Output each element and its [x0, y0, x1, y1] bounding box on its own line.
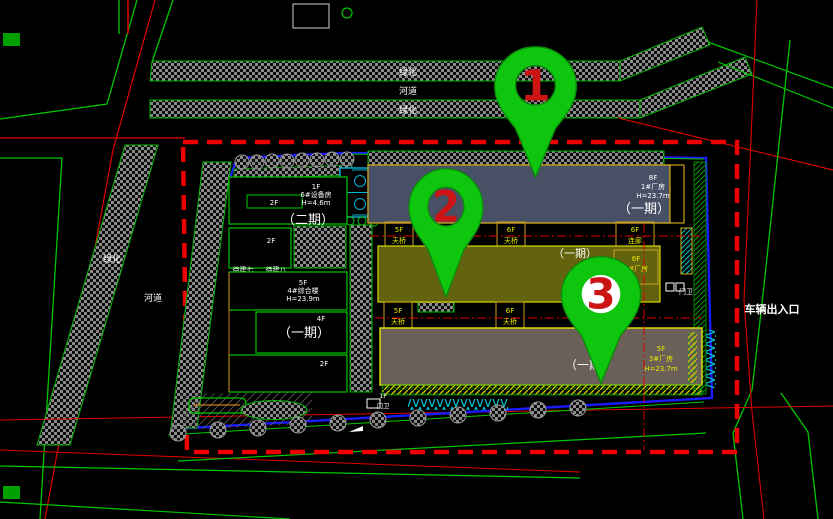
b2f-label: 2F: [267, 237, 275, 245]
left-river-label: 河道: [144, 292, 162, 304]
site-plan: 绿化 河道 绿化 河道 绿化: [0, 0, 833, 519]
b1-floors-label: 8F: [649, 174, 657, 182]
b3-name-label: 3#厂房: [649, 354, 673, 363]
cyan-zigzag-strip-right: [706, 330, 716, 388]
gatehouse-right: 门卫: [666, 283, 693, 296]
gatehouse-bottom: 1F 门卫: [367, 392, 390, 410]
green-block-top-left: [3, 33, 20, 46]
b4-height-label: H=23.9m: [286, 295, 320, 303]
pin-2-number: 2: [432, 182, 460, 232]
connector2-floors: 6F: [507, 226, 515, 234]
building-6-equipment: 1F 6#设备房 H=4.6m 2F （二期）: [229, 177, 347, 228]
gatehouse-name-label: 门卫: [377, 401, 391, 410]
building-2f-block: 2F: [229, 228, 291, 268]
site-plan-screenshot: 绿化 河道 绿化 河道 绿化: [0, 0, 833, 519]
direction-arrow: [349, 426, 363, 432]
b4-annex-floors-label: 4F: [317, 315, 325, 323]
top-river-label: 河道: [399, 85, 417, 97]
phase2-label: （二期）: [282, 213, 334, 228]
connector3-name: 连廊: [628, 236, 642, 245]
left-greening-strip: 绿化 河道: [37, 145, 162, 445]
connector1-name: 天桥: [392, 236, 406, 245]
b1-name-label: 1#厂房: [641, 182, 665, 191]
connector1-floors: 5F: [395, 226, 403, 234]
b6-floors-label: 1F: [312, 183, 320, 191]
phase1-label-left: （一期）: [278, 326, 330, 341]
b1-height-label: H=23.7m: [636, 192, 670, 200]
green-block-bottom-left: [3, 486, 20, 499]
offsite-structure: [293, 4, 329, 28]
connector5-floors: 6F: [506, 307, 514, 315]
connector3-floors: 6F: [631, 226, 639, 234]
b4-lower-floors-label: 2F: [320, 360, 328, 368]
gate2-label: 门卫: [679, 287, 693, 296]
building-3-factory: 5F 3#厂房 H=23.7m （一期）: [380, 328, 702, 395]
offsite-tree: [342, 8, 352, 18]
b6-name-label: 6#设备房: [300, 190, 331, 199]
b4-name-label: 4#综合楼: [287, 286, 318, 295]
top-greening-label-1: 绿化: [399, 66, 417, 78]
gatehouse-floors-label: 1F: [379, 392, 387, 400]
building-4-complex: 5F 4#综合楼 H=23.9m 4F （一期） 2F: [229, 272, 347, 392]
pin-1-number: 1: [520, 62, 550, 112]
pin-3-number: 3: [586, 270, 615, 319]
b3-floors-label: 5F: [657, 345, 665, 353]
b3-height-label: H=23.7m: [644, 365, 678, 373]
vehicle-entrance-label: 车辆出入口: [745, 302, 800, 316]
b6-height-label: H=4.6m: [301, 199, 330, 207]
connector4-floors: 5F: [394, 307, 402, 315]
b2-floors-label: 6F: [632, 255, 640, 263]
canal-greening-strips-top: 绿化 河道 绿化: [150, 27, 752, 118]
b4-floors-label: 5F: [299, 279, 307, 287]
top-greening-label-2: 绿化: [399, 104, 417, 116]
connector2-name: 天桥: [504, 236, 518, 245]
b6-annex-floors-label: 2F: [270, 199, 278, 207]
left-greening-label: 绿化: [103, 253, 121, 265]
phase1-label-b1: （一期）: [618, 202, 670, 217]
